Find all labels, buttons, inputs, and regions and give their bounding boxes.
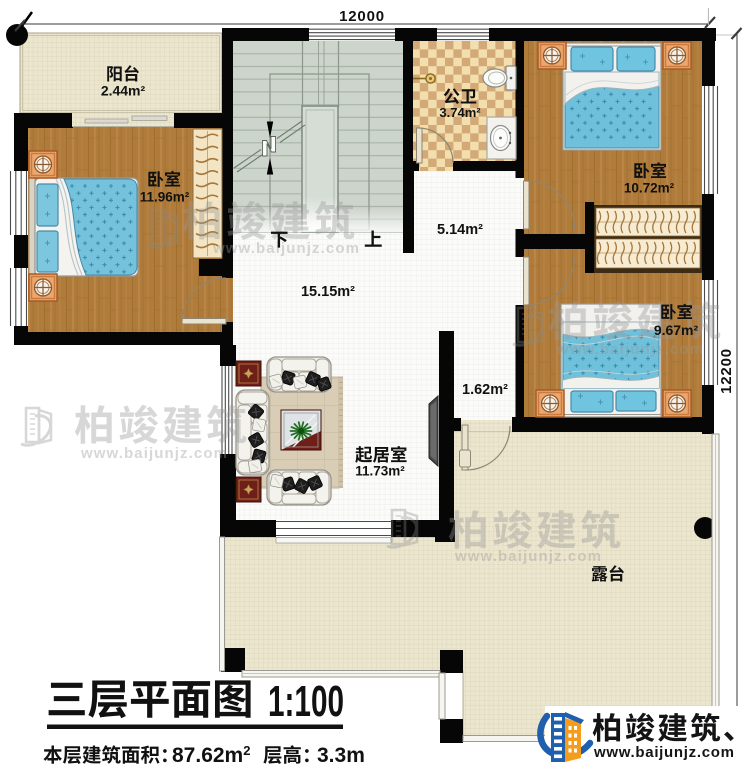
svg-text:87.62m2: 87.62m2	[172, 743, 250, 767]
svg-text:3.3m: 3.3m	[317, 744, 365, 767]
svg-text:11.96m²: 11.96m²	[140, 190, 190, 205]
svg-text:10.72m²: 10.72m²	[624, 181, 675, 196]
svg-text:www.baijunjz.com: www.baijunjz.com	[593, 744, 735, 761]
svg-text:www.baijunjz.com: www.baijunjz.com	[556, 341, 704, 358]
svg-text:12200: 12200	[718, 348, 735, 394]
svg-text:www.baijunjz.com: www.baijunjz.com	[80, 445, 228, 462]
svg-text:11.73m²: 11.73m²	[355, 464, 405, 479]
svg-text:1.62m²: 1.62m²	[462, 382, 508, 398]
svg-text:2.44m²: 2.44m²	[101, 83, 146, 99]
svg-text:1:100: 1:100	[268, 677, 344, 726]
svg-text:5.14m²: 5.14m²	[437, 222, 483, 238]
svg-text:www.baijunjz.com: www.baijunjz.com	[454, 548, 602, 565]
svg-text:15.15m²: 15.15m²	[301, 284, 355, 300]
svg-text:www.baijunjz.com: www.baijunjz.com	[212, 240, 360, 257]
svg-text:9.67m²: 9.67m²	[654, 322, 699, 338]
svg-text:12000: 12000	[339, 8, 385, 25]
svg-text:3.74m²: 3.74m²	[439, 105, 481, 120]
